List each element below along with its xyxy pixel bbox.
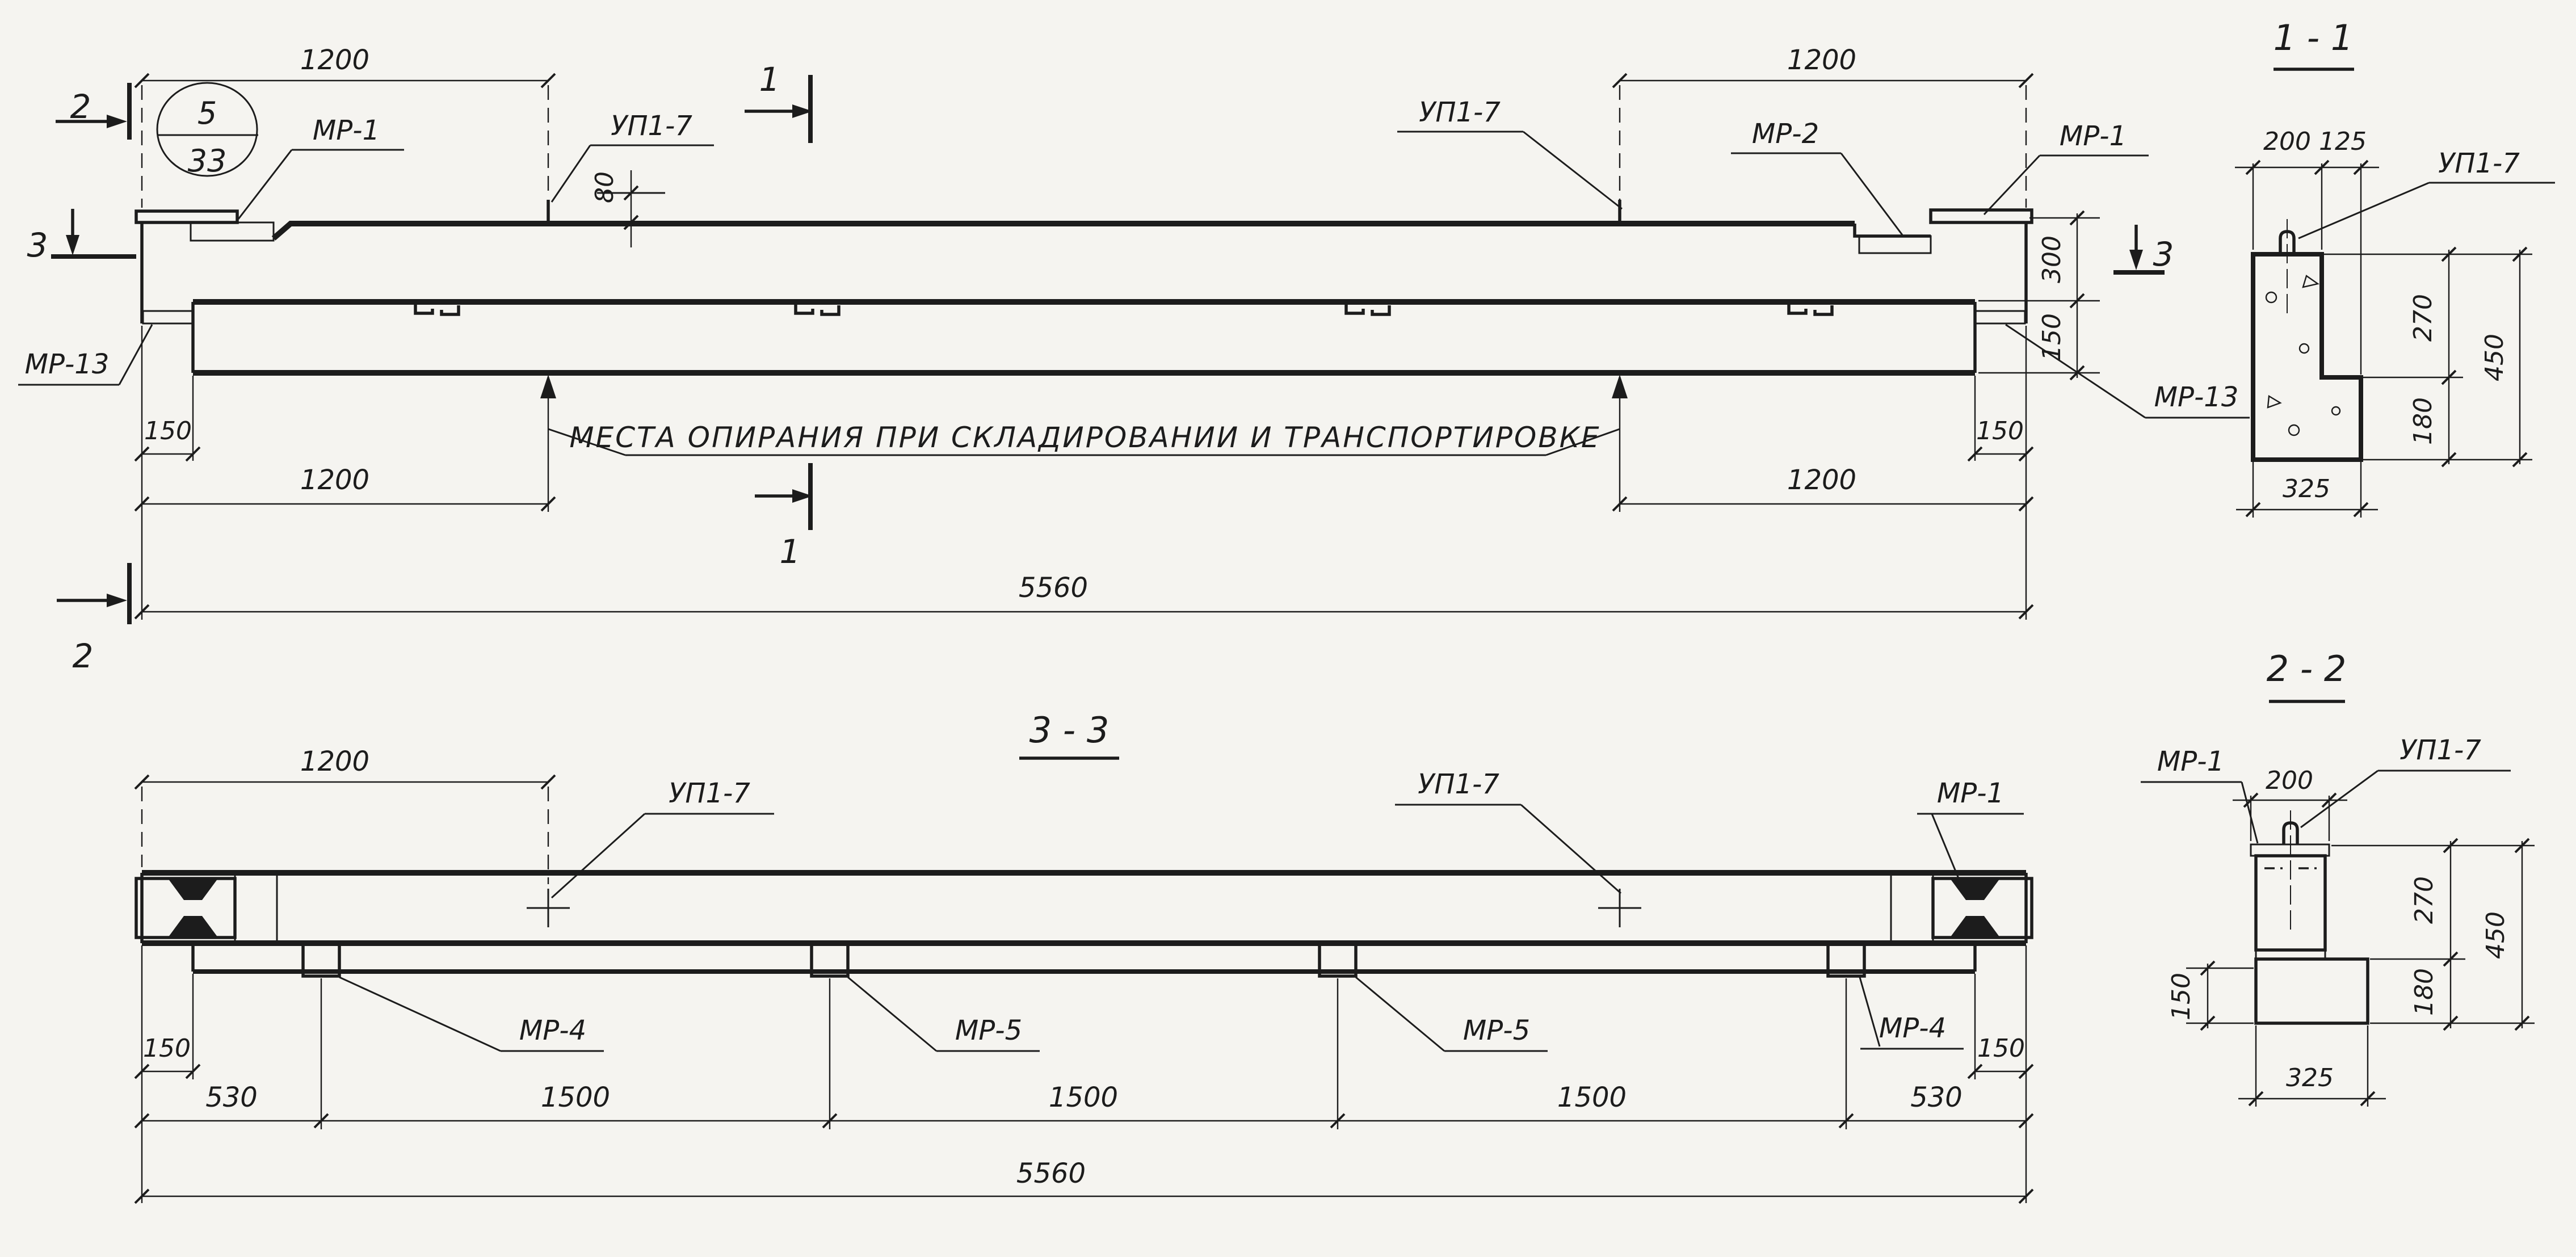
dim-text: 150	[143, 1034, 191, 1063]
label-text: УП1-7	[2438, 148, 2520, 179]
dim-text: 150	[2037, 313, 2066, 361]
section-mark-3-right: 3	[2113, 225, 2174, 274]
label-text: МР-4	[519, 1015, 586, 1046]
label-text: МР-2	[1752, 118, 1819, 150]
dim-span-bottom-right: 1200	[1613, 464, 2033, 511]
callout-mr1-left: МР-1	[238, 115, 404, 219]
callout-mr4-left: МР-4	[339, 977, 604, 1051]
callout-mr5-left: МР-5	[848, 977, 1040, 1051]
support-note-text: МЕСТА ОПИРАНИЯ ПРИ СКЛАДИРОВАНИИ И ТРАНС…	[569, 421, 1600, 454]
mr2-recess-step	[1855, 224, 1931, 236]
dim-2-2-right: 270 180 450	[2331, 839, 2535, 1030]
dim-plan-span-left: 1200	[135, 746, 555, 884]
mark-1-digit: 1	[780, 532, 801, 571]
dim-text: 1200	[300, 746, 369, 777]
elevation-view: 5 33 2 2 3 3 1	[18, 44, 2250, 675]
beam-elevation-outline	[136, 200, 2032, 373]
dim-1-1-top: 200 125	[2235, 127, 2379, 375]
dim-end-left: 150	[135, 417, 200, 461]
label-text: МР-1	[2060, 120, 2127, 152]
section-mark-2-top: 2	[56, 83, 129, 140]
end-block-left	[136, 874, 277, 942]
dim-text: 450	[2480, 334, 2509, 381]
callout-up17-right: УП1-7	[1397, 96, 1622, 209]
dim-2-2-bottom: 325	[2238, 1025, 2386, 1107]
dim-text: 1200	[1787, 464, 1856, 496]
dim-text: 5560	[1019, 572, 1088, 604]
mr1-plate-right	[1931, 210, 2032, 222]
callout-up17-1-1: УП1-7	[2298, 148, 2555, 238]
label-text: МР-5	[1463, 1015, 1530, 1046]
dim-text: 1500	[1049, 1082, 1118, 1113]
plan-3-3-view: 3 - 3	[135, 709, 2033, 1203]
dim-text: 150	[1977, 1034, 2025, 1063]
dim-text: 450	[2481, 911, 2510, 959]
section-1-1-view: 1 - 1 200 125 УП1-7	[2235, 17, 2555, 518]
beam-plan-outline	[142, 873, 2026, 972]
part-number: 5	[197, 95, 217, 131]
section-title: 1 - 1	[2274, 17, 2354, 58]
dim-text: 5560	[1016, 1158, 1086, 1189]
hook-marks	[415, 304, 1832, 314]
label-text: УП1-7	[1419, 96, 1501, 128]
dim-text: 530	[1910, 1082, 1963, 1113]
section-title: 2 - 2	[2267, 648, 2347, 690]
dim-text: 200	[2266, 766, 2313, 795]
dim-span-top-right: 1200	[1613, 44, 2033, 208]
label-text: МР-4	[1879, 1012, 1946, 1044]
label-text: МР-13	[2154, 381, 2239, 413]
ledge-2-2	[2256, 959, 2368, 1023]
dim-text: 270	[2410, 876, 2439, 924]
dim-plan-end-right: 150	[1968, 1034, 2033, 1078]
dim-heights-right: 300 150	[1978, 211, 2100, 380]
dim-span-bottom-left: 1200	[135, 464, 555, 511]
dim-text: 530	[205, 1082, 258, 1113]
label-text: МР-1	[1937, 777, 2004, 809]
mr2-weld-hatch	[1859, 236, 1931, 253]
mark-3-digit: 3	[2153, 235, 2174, 274]
mark-1-digit: 1	[759, 60, 780, 99]
label-text: МР-13	[25, 348, 110, 380]
structural-drawing-sheet: 5 33 2 2 3 3 1	[0, 0, 2576, 1257]
dim-loop-height-80: 80	[590, 170, 665, 247]
mr1-weld-hatch-left	[191, 222, 274, 241]
dim-2-2-top: 200	[2233, 766, 2347, 841]
mark-2-digit: 2	[73, 637, 94, 675]
mr13-plate-left	[143, 311, 193, 323]
part-mark-circle: 5 33	[157, 83, 258, 179]
section-mark-3-left: 3	[27, 209, 136, 264]
callout-mr2: МР-2	[1731, 118, 1902, 235]
dim-text: 300	[2037, 236, 2066, 283]
dim-text: 325	[2283, 474, 2330, 503]
section-mark-2-bottom: 2	[57, 563, 129, 675]
sheet-number: 33	[188, 143, 227, 179]
mr13-plate-right	[1975, 311, 2025, 323]
support-arrow-right	[1612, 375, 1628, 398]
dim-text: 150	[2167, 973, 2196, 1020]
dim-text: 270	[2409, 294, 2438, 342]
dim-text: 150	[144, 417, 192, 445]
dim-text: 1200	[300, 44, 369, 76]
dim-total-elevation: 5560	[135, 572, 2033, 619]
dim-text: 1200	[1787, 44, 1856, 76]
label-text: МР-1	[313, 115, 380, 146]
dim-text: 80	[590, 171, 619, 203]
callout-mr5-right: МР-5	[1356, 977, 1548, 1051]
dim-text: 180	[2409, 397, 2438, 445]
aggregate-marks	[2266, 276, 2340, 435]
top-chord-line	[274, 224, 1855, 238]
dim-text: 125	[2319, 127, 2367, 156]
section-mark-1-bottom: 1	[755, 463, 813, 571]
label-text: УП1-7	[611, 110, 692, 142]
label-text: УП1-7	[2399, 734, 2481, 766]
section-1-1-body	[2253, 254, 2361, 460]
callout-mr1-plan: МР-1	[1917, 777, 2024, 880]
callout-mr1-2-2: МР-1	[2141, 746, 2258, 843]
dim-text: 1500	[541, 1082, 610, 1113]
dim-plan-segments: 530 1500 1500 1500 530	[135, 1082, 2033, 1128]
end-block-right	[1891, 874, 2032, 942]
dim-text: 200	[2263, 127, 2311, 156]
dim-text: 150	[1976, 417, 2024, 445]
mark-3-digit: 3	[27, 226, 48, 264]
dim-text: 325	[2286, 1063, 2334, 1092]
section-title: 3 - 3	[1029, 709, 1110, 751]
label-text: МР-5	[955, 1015, 1022, 1046]
section-2-2-view: 2 - 2 МР-1 УП1-7 200	[2141, 648, 2535, 1107]
dim-plan-total: 5560	[135, 1158, 2033, 1203]
dim-text: 180	[2410, 968, 2439, 1016]
support-arrow-left	[540, 375, 556, 398]
support-note: МЕСТА ОПИРАНИЯ ПРИ СКЛАДИРОВАНИИ И ТРАНС…	[540, 375, 1628, 455]
callout-up17-left: УП1-7	[552, 110, 714, 202]
callout-up17-2-2: УП1-7	[2301, 734, 2511, 827]
callout-mr13-left: МР-13	[18, 325, 152, 385]
dim-end-right: 150	[1968, 417, 2033, 461]
dim-2-2-left: 150	[2167, 961, 2254, 1030]
dim-text: 1200	[300, 464, 369, 496]
callout-mr4-right: МР-4	[1860, 977, 1964, 1049]
label-text: УП1-7	[669, 777, 750, 809]
mr1-plate-left	[136, 211, 237, 222]
callout-mr1-right: МР-1	[1984, 120, 2149, 215]
dim-1-1-bottom: 325	[2236, 462, 2378, 518]
callout-up17-plan-left: УП1-7	[552, 777, 774, 898]
dim-plan-end-left: 150	[135, 1034, 200, 1078]
dim-text: 1500	[1557, 1082, 1627, 1113]
section-mark-1-top: 1	[745, 60, 813, 143]
label-text: МР-1	[2157, 746, 2224, 777]
label-text: УП1-7	[1418, 768, 1499, 800]
dim-1-1-right: 270 180 450	[2324, 247, 2532, 466]
up17-plan-marks	[527, 889, 1641, 927]
